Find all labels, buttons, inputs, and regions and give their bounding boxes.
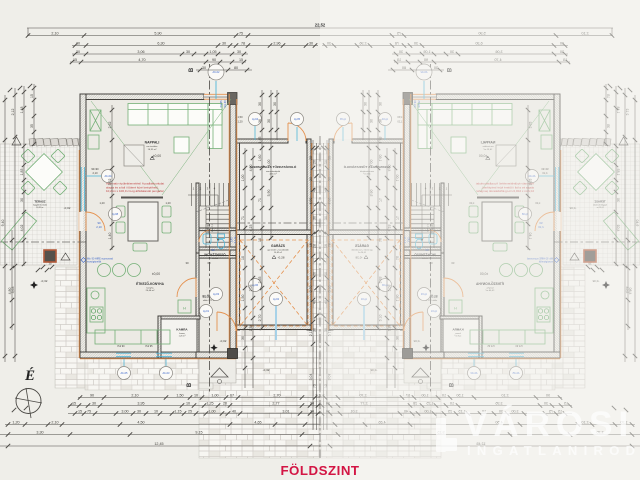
svg-text:16,31 m²: 16,31 m²: [36, 206, 44, 209]
svg-text:30: 30: [202, 66, 206, 70]
svg-text:16x17,2: 16x17,2: [212, 223, 214, 232]
svg-text:NAPPALI: NAPPALI: [145, 141, 160, 145]
svg-text:20: 20: [223, 401, 227, 405]
svg-text:Dm 90: Dm 90: [224, 100, 227, 108]
svg-text:9,15: 9,15: [195, 430, 202, 434]
svg-text:40: 40: [312, 300, 316, 304]
svg-text:1,20: 1,20: [237, 120, 243, 124]
svg-text:60: 60: [207, 261, 211, 265]
svg-text:1,00: 1,00: [241, 175, 245, 182]
svg-text:Ab-04: Ab-04: [105, 174, 112, 178]
svg-text:1,60: 1,60: [258, 155, 262, 162]
svg-text:1,50: 1,50: [241, 295, 245, 302]
svg-text:-0,32: -0,32: [263, 368, 270, 372]
svg-text:Ab-03: Ab-03: [163, 371, 170, 375]
svg-text:mosógépelők: mosógépelők: [87, 260, 102, 263]
svg-text:30: 30: [241, 336, 245, 340]
svg-text:1,20: 1,20: [12, 420, 19, 424]
svg-text:30: 30: [186, 50, 190, 54]
svg-text:71: 71: [258, 198, 262, 202]
svg-text:4,65 m²: 4,65 m²: [269, 172, 276, 175]
svg-text:2,77: 2,77: [272, 401, 279, 405]
svg-text:szerszámtároló: szerszámtároló: [266, 170, 281, 173]
svg-text:3,30: 3,30: [36, 430, 43, 434]
svg-text:71: 71: [241, 216, 245, 220]
svg-text:1,15: 1,15: [174, 409, 181, 413]
svg-text:1,38: 1,38: [249, 325, 253, 332]
svg-text:90: 90: [90, 393, 94, 397]
svg-text:30: 30: [310, 409, 314, 413]
svg-text:15: 15: [72, 401, 76, 405]
svg-text:4,50: 4,50: [137, 420, 144, 424]
svg-text:80: 80: [234, 66, 238, 70]
svg-text:28: 28: [312, 244, 316, 248]
svg-text:30: 30: [312, 328, 316, 332]
svg-text:20: 20: [312, 160, 316, 164]
svg-text:50: 50: [211, 248, 215, 252]
svg-text:4,02: 4,02: [20, 225, 24, 232]
svg-text:90×90: 90×90: [91, 167, 99, 171]
svg-text:9,40: 9,40: [1, 220, 5, 227]
svg-text:-0,32: -0,32: [41, 279, 48, 283]
svg-text:6,90: 6,90: [309, 198, 313, 205]
svg-text:Pol 95: Pol 95: [145, 345, 153, 348]
svg-text:1,00: 1,00: [211, 393, 218, 397]
svg-text:1,25: 1,25: [206, 401, 213, 405]
svg-text:Aj-05: Aj-05: [294, 117, 301, 121]
svg-text:16,62 m²: 16,62 m²: [274, 251, 282, 254]
svg-text:30: 30: [92, 401, 96, 405]
svg-text:67: 67: [230, 393, 234, 397]
svg-text:10: 10: [154, 409, 158, 413]
svg-text:30: 30: [258, 102, 262, 106]
svg-text:-0,02: -0,02: [64, 206, 71, 210]
svg-text:15: 15: [78, 409, 82, 413]
svg-text:75: 75: [87, 409, 91, 413]
svg-text:2,70: 2,70: [258, 315, 262, 322]
svg-text:1,50: 1,50: [237, 115, 243, 119]
svg-text:75: 75: [239, 31, 243, 35]
svg-text:30: 30: [76, 50, 80, 54]
svg-text:4,23: 4,23: [249, 225, 253, 232]
svg-text:2,10: 2,10: [96, 225, 102, 229]
svg-text:nm területe: nm területe: [147, 145, 159, 148]
svg-text:30: 30: [222, 41, 226, 45]
svg-text:-0,28: -0,28: [277, 256, 284, 260]
svg-text:3,00: 3,00: [121, 409, 128, 413]
svg-text:2,96: 2,96: [273, 41, 280, 45]
svg-text:1,50: 1,50: [176, 393, 183, 397]
svg-text:20: 20: [312, 272, 316, 276]
svg-text:5,90: 5,90: [154, 31, 161, 35]
svg-text:SZERSZÁM-ÉS TŰZIFATÁROLÓ: SZERSZÁM-ÉS TŰZIFATÁROLÓ: [250, 164, 297, 169]
svg-text:30: 30: [237, 50, 241, 54]
svg-text:16,31 m²: 16,31 m²: [148, 148, 157, 151]
svg-text:Pol 90: Pol 90: [117, 345, 125, 348]
svg-text:30: 30: [309, 41, 313, 45]
svg-text:1,40: 1,40: [108, 233, 112, 240]
svg-text:2,70: 2,70: [309, 286, 313, 293]
svg-text:4,80: 4,80: [8, 288, 12, 295]
svg-text:KAMRA: KAMRA: [176, 328, 188, 332]
svg-text:TERASZ: TERASZ: [34, 200, 45, 204]
svg-text:1,00: 1,00: [267, 160, 271, 167]
svg-text:12,45: 12,45: [154, 442, 163, 446]
svg-text:2,65: 2,65: [258, 277, 262, 284]
svg-text:B: B: [187, 382, 193, 387]
svg-text:1,43: 1,43: [230, 237, 234, 243]
svg-text:1,83: 1,83: [20, 169, 24, 176]
svg-text:-0,02: -0,02: [220, 339, 227, 343]
svg-text:±0,00: ±0,00: [152, 272, 160, 276]
svg-text:75: 75: [312, 384, 316, 388]
svg-text:mosdó: mosdó: [212, 258, 219, 260]
svg-text:10: 10: [194, 393, 198, 397]
svg-text:Pm 95: Pm 95: [220, 100, 223, 108]
svg-text:4,65: 4,65: [254, 420, 261, 424]
svg-text:2,10: 2,10: [51, 420, 58, 424]
svg-text:40: 40: [232, 409, 236, 413]
svg-text:Aj-03: Aj-03: [213, 292, 220, 296]
svg-text:Aj-08: Aj-08: [112, 212, 119, 216]
svg-text:VÁROSI: VÁROSI: [464, 404, 634, 444]
svg-text:Ab-05: Ab-05: [121, 371, 128, 375]
svg-text:1,20: 1,20: [165, 201, 171, 205]
svg-text:90: 90: [212, 58, 216, 62]
svg-text:15: 15: [30, 94, 34, 98]
svg-text:30: 30: [185, 261, 189, 265]
svg-text:4,70: 4,70: [138, 58, 145, 62]
svg-text:1,26 m²: 1,26 m²: [179, 334, 186, 337]
svg-text:3,95: 3,95: [137, 401, 144, 405]
svg-text:3,06: 3,06: [137, 50, 144, 54]
svg-text:20: 20: [309, 177, 313, 181]
svg-text:1,05: 1,05: [209, 50, 216, 54]
svg-text:10: 10: [241, 256, 245, 260]
svg-text:1,20: 1,20: [99, 201, 105, 205]
svg-text:48: 48: [312, 188, 316, 192]
svg-text:4,00: 4,00: [249, 165, 253, 172]
svg-text:30: 30: [267, 119, 271, 123]
svg-text:A6-02: A6-02: [213, 70, 220, 74]
svg-text:2,62: 2,62: [108, 122, 112, 129]
svg-text:É: É: [24, 367, 35, 384]
svg-text:ÉTKEZŐ-KONYHA: ÉTKEZŐ-KONYHA: [136, 281, 165, 286]
svg-text:30: 30: [20, 198, 24, 202]
svg-text:2,10: 2,10: [131, 393, 138, 397]
svg-text:3,62: 3,62: [108, 179, 112, 186]
svg-text:30: 30: [76, 41, 80, 45]
svg-text:gar.terület + kocsibeálló: gar.terület + kocsibeálló: [267, 249, 289, 252]
svg-text:GARÁZS: GARÁZS: [271, 243, 286, 248]
svg-text:1,45: 1,45: [258, 137, 262, 144]
svg-text:1,48: 1,48: [20, 107, 24, 114]
svg-text:30: 30: [137, 409, 141, 413]
svg-text:±0,00: ±0,00: [153, 154, 161, 158]
svg-text:78: 78: [241, 41, 245, 45]
svg-text:2,05: 2,05: [249, 285, 253, 292]
svg-text:1,00: 1,00: [208, 409, 215, 413]
svg-text:B: B: [189, 67, 195, 72]
svg-text:2,10: 2,10: [51, 31, 58, 35]
svg-text:2,12: 2,12: [11, 109, 15, 116]
svg-text:5,90: 5,90: [267, 190, 271, 197]
svg-text:30: 30: [312, 216, 316, 220]
svg-text:INGATLANIRODA: INGATLANIRODA: [467, 443, 640, 458]
svg-text:35: 35: [30, 124, 34, 128]
svg-text:15: 15: [239, 58, 243, 62]
svg-text:10: 10: [258, 238, 262, 242]
svg-text:22,52: 22,52: [315, 23, 326, 28]
svg-text:2,70: 2,70: [273, 393, 280, 397]
svg-text:3,04: 3,04: [309, 374, 313, 381]
svg-text:2,10: 2,10: [92, 171, 98, 175]
svg-text:6,30: 6,30: [157, 41, 164, 45]
svg-text:20,66 m²: 20,66 m²: [146, 289, 155, 292]
svg-text:10,2cm x 100,0 cm-ig áthidalan: 10,2cm x 100,0 cm-ig áthidalandó pengefa…: [106, 189, 164, 193]
svg-text:1,7 m: 1,7 m: [233, 237, 237, 244]
svg-text:28: 28: [309, 156, 313, 160]
svg-text:36: 36: [258, 119, 262, 123]
svg-text:10: 10: [186, 401, 190, 405]
svg-text:Aj-01: Aj-01: [203, 309, 210, 313]
svg-text:FÖLDSZINT: FÖLDSZINT: [280, 463, 359, 478]
svg-text:30: 30: [273, 102, 277, 106]
svg-text:WC-KÉZMOSÓ: WC-KÉZMOSÓ: [204, 252, 226, 257]
svg-text:25: 25: [188, 409, 192, 413]
svg-text:3,01: 3,01: [282, 409, 289, 413]
svg-text:Aj-02: Aj-02: [273, 297, 280, 301]
svg-text:15: 15: [73, 58, 77, 62]
svg-text:20: 20: [310, 401, 314, 405]
